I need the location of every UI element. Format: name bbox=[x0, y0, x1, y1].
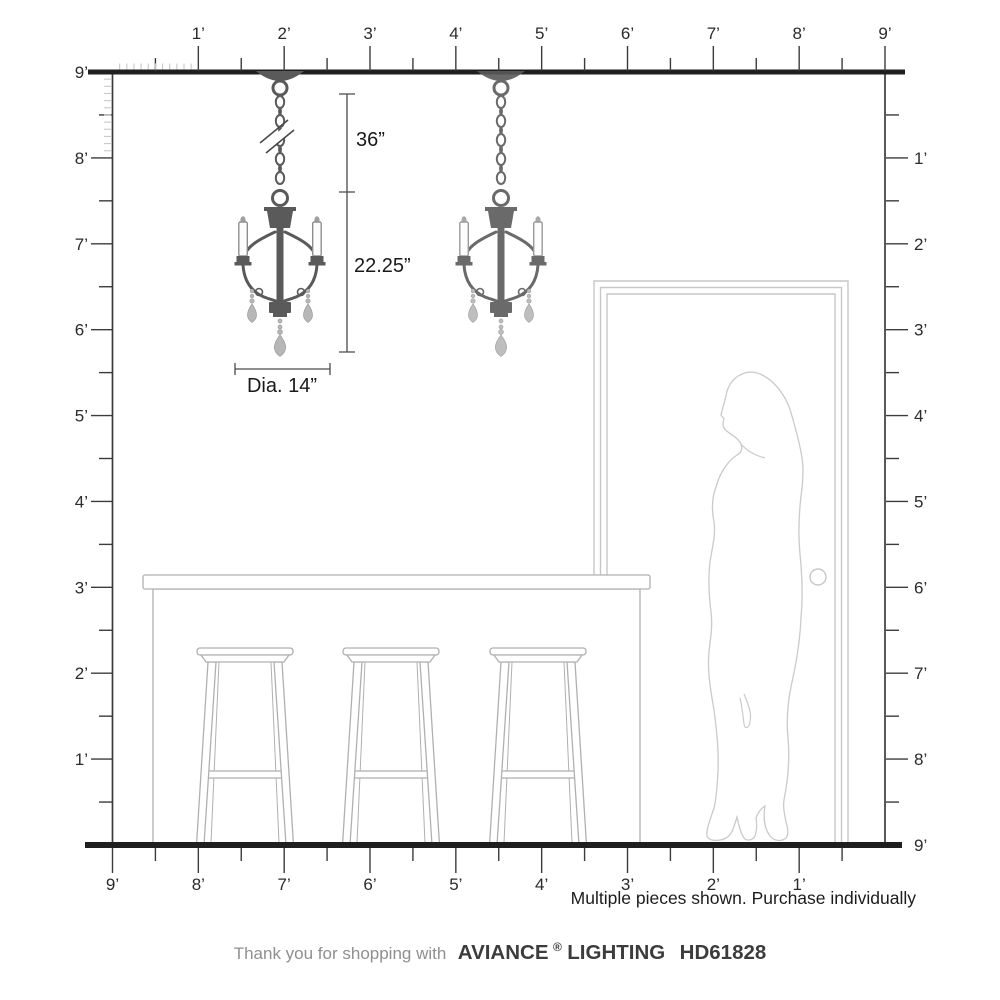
ruler-label: 6’ bbox=[621, 24, 634, 43]
ruler-label: 2’ bbox=[278, 24, 291, 43]
ruler-label: 5’ bbox=[914, 492, 927, 511]
ruler-label: 9’ bbox=[106, 875, 119, 894]
ruler-label: 8’ bbox=[192, 875, 205, 894]
brand-suffix: LIGHTING bbox=[567, 941, 665, 964]
ruler-label: 5’ bbox=[75, 407, 88, 426]
counter-top bbox=[143, 575, 650, 589]
ruler-label: 9’ bbox=[878, 24, 891, 43]
floor-line bbox=[85, 842, 902, 848]
ruler-label: 5’ bbox=[449, 875, 462, 894]
ruler-right: 1’2’3’4’5’6’7’8’9’ bbox=[886, 115, 927, 855]
ruler-label: 1’ bbox=[914, 149, 927, 168]
purchase-note: Multiple pieces shown. Purchase individu… bbox=[571, 888, 917, 908]
ruler-label: 8’ bbox=[75, 149, 88, 168]
diameter-label: Dia. 14” bbox=[247, 375, 317, 397]
ruler-label: 6’ bbox=[914, 578, 927, 597]
woman-silhouette bbox=[707, 372, 803, 840]
ruler-label: 3’ bbox=[363, 24, 376, 43]
chain-length-label: 36” bbox=[356, 129, 385, 151]
ruler-label: 8’ bbox=[914, 750, 927, 769]
ruler-label: 4’ bbox=[914, 407, 927, 426]
footer-prefix: Thank you for shopping with bbox=[234, 944, 447, 963]
dimension-lines: 36” 22.25” Dia. 14” bbox=[235, 94, 411, 397]
ruler-label: 1’ bbox=[75, 750, 88, 769]
inch-ticks bbox=[104, 64, 191, 151]
ruler-label: 1’ bbox=[192, 24, 205, 43]
ruler-label: 6’ bbox=[75, 321, 88, 340]
ruler-label: 3’ bbox=[75, 578, 88, 597]
ruler-label: 7’ bbox=[707, 24, 720, 43]
ruler-label: 4’ bbox=[535, 875, 548, 894]
ruler-label: 8’ bbox=[793, 24, 806, 43]
chandelier-right bbox=[456, 71, 547, 357]
ruler-label: 6’ bbox=[363, 875, 376, 894]
dimension-vertical-line bbox=[339, 94, 355, 352]
ruler-label: 3’ bbox=[914, 321, 927, 340]
ruler-left: 9’8’7’6’5’4’3’2’1’ bbox=[75, 63, 112, 802]
fixture-height-label: 22.25” bbox=[354, 255, 411, 277]
ruler-label: 7’ bbox=[75, 235, 88, 254]
counter-body bbox=[153, 589, 640, 845]
chandelier-left bbox=[235, 71, 326, 357]
ruler-label: 2’ bbox=[75, 664, 88, 683]
dimension-diameter-line bbox=[235, 363, 330, 375]
ruler-label: 4’ bbox=[449, 24, 462, 43]
ruler-label: 9’ bbox=[75, 63, 88, 82]
model-number: HD61828 bbox=[680, 941, 767, 964]
door-knob-icon bbox=[810, 569, 826, 585]
ruler-label: 4’ bbox=[75, 492, 88, 511]
brand-name: AVIANCE bbox=[458, 941, 549, 964]
ruler-label: 5’ bbox=[535, 24, 548, 43]
registered-mark-icon: ® bbox=[553, 940, 562, 954]
ruler-label: 2’ bbox=[914, 235, 927, 254]
ruler-label: 9’ bbox=[914, 836, 927, 855]
ruler-label: 7’ bbox=[914, 664, 927, 683]
ruler-label: 7’ bbox=[278, 875, 291, 894]
ruler-top: 1’2’3’4’5’6’7’8’9’ bbox=[155, 24, 891, 71]
footer-text: Thank you for shopping with AVIANCE ® LI… bbox=[234, 938, 767, 964]
product-dimension-diagram: 1’2’3’4’5’6’7’8’9’ 9’8’7’6’5’4’3’2’1’ 9’… bbox=[0, 0, 1000, 1000]
